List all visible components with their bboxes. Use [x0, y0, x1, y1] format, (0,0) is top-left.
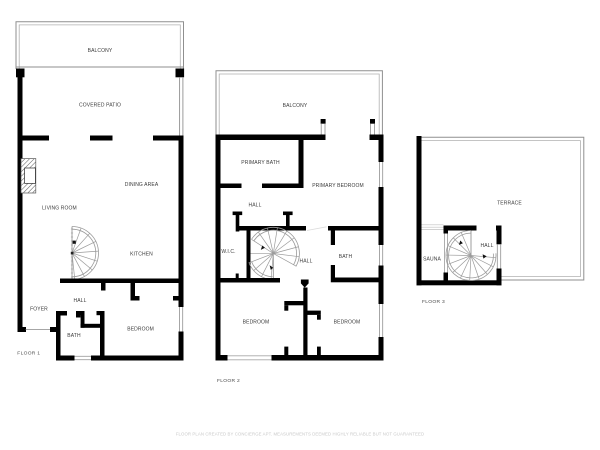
- svg-text:BEDROOM: BEDROOM: [243, 320, 270, 326]
- svg-text:LIVING ROOM: LIVING ROOM: [42, 206, 77, 212]
- svg-text:HALL: HALL: [74, 298, 87, 304]
- svg-text:BEDROOM: BEDROOM: [127, 327, 154, 333]
- svg-text:SAUNA: SAUNA: [423, 256, 441, 262]
- svg-text:PRIMARY BEDROOM: PRIMARY BEDROOM: [312, 183, 364, 189]
- svg-text:HALL: HALL: [481, 243, 494, 249]
- svg-text:BATH: BATH: [339, 254, 353, 260]
- svg-text:W.I.C.: W.I.C.: [221, 249, 235, 255]
- svg-text:TERRACE: TERRACE: [497, 200, 522, 206]
- svg-text:BALCONY: BALCONY: [88, 48, 113, 54]
- svg-text:BATH: BATH: [67, 333, 81, 339]
- svg-text:HALL: HALL: [300, 258, 313, 264]
- svg-text:PRIMARY BATH: PRIMARY BATH: [241, 160, 280, 166]
- svg-text:FLOOR 2: FLOOR 2: [217, 378, 240, 384]
- svg-text:KITCHEN: KITCHEN: [130, 252, 153, 258]
- svg-text:FLOOR 3: FLOOR 3: [422, 299, 445, 305]
- svg-text:BALCONY: BALCONY: [283, 103, 308, 109]
- svg-text:HALL: HALL: [249, 202, 262, 208]
- svg-text:FLOOR PLAN CREATED BY CONCIERG: FLOOR PLAN CREATED BY CONCIERGE APT. MEA…: [176, 432, 424, 437]
- svg-text:DINING AREA: DINING AREA: [125, 182, 159, 188]
- svg-text:BEDROOM: BEDROOM: [334, 320, 361, 326]
- svg-text:COVERED PATIO: COVERED PATIO: [79, 103, 121, 109]
- svg-text:FOYER: FOYER: [30, 307, 48, 313]
- svg-text:FLOOR 1: FLOOR 1: [17, 351, 40, 357]
